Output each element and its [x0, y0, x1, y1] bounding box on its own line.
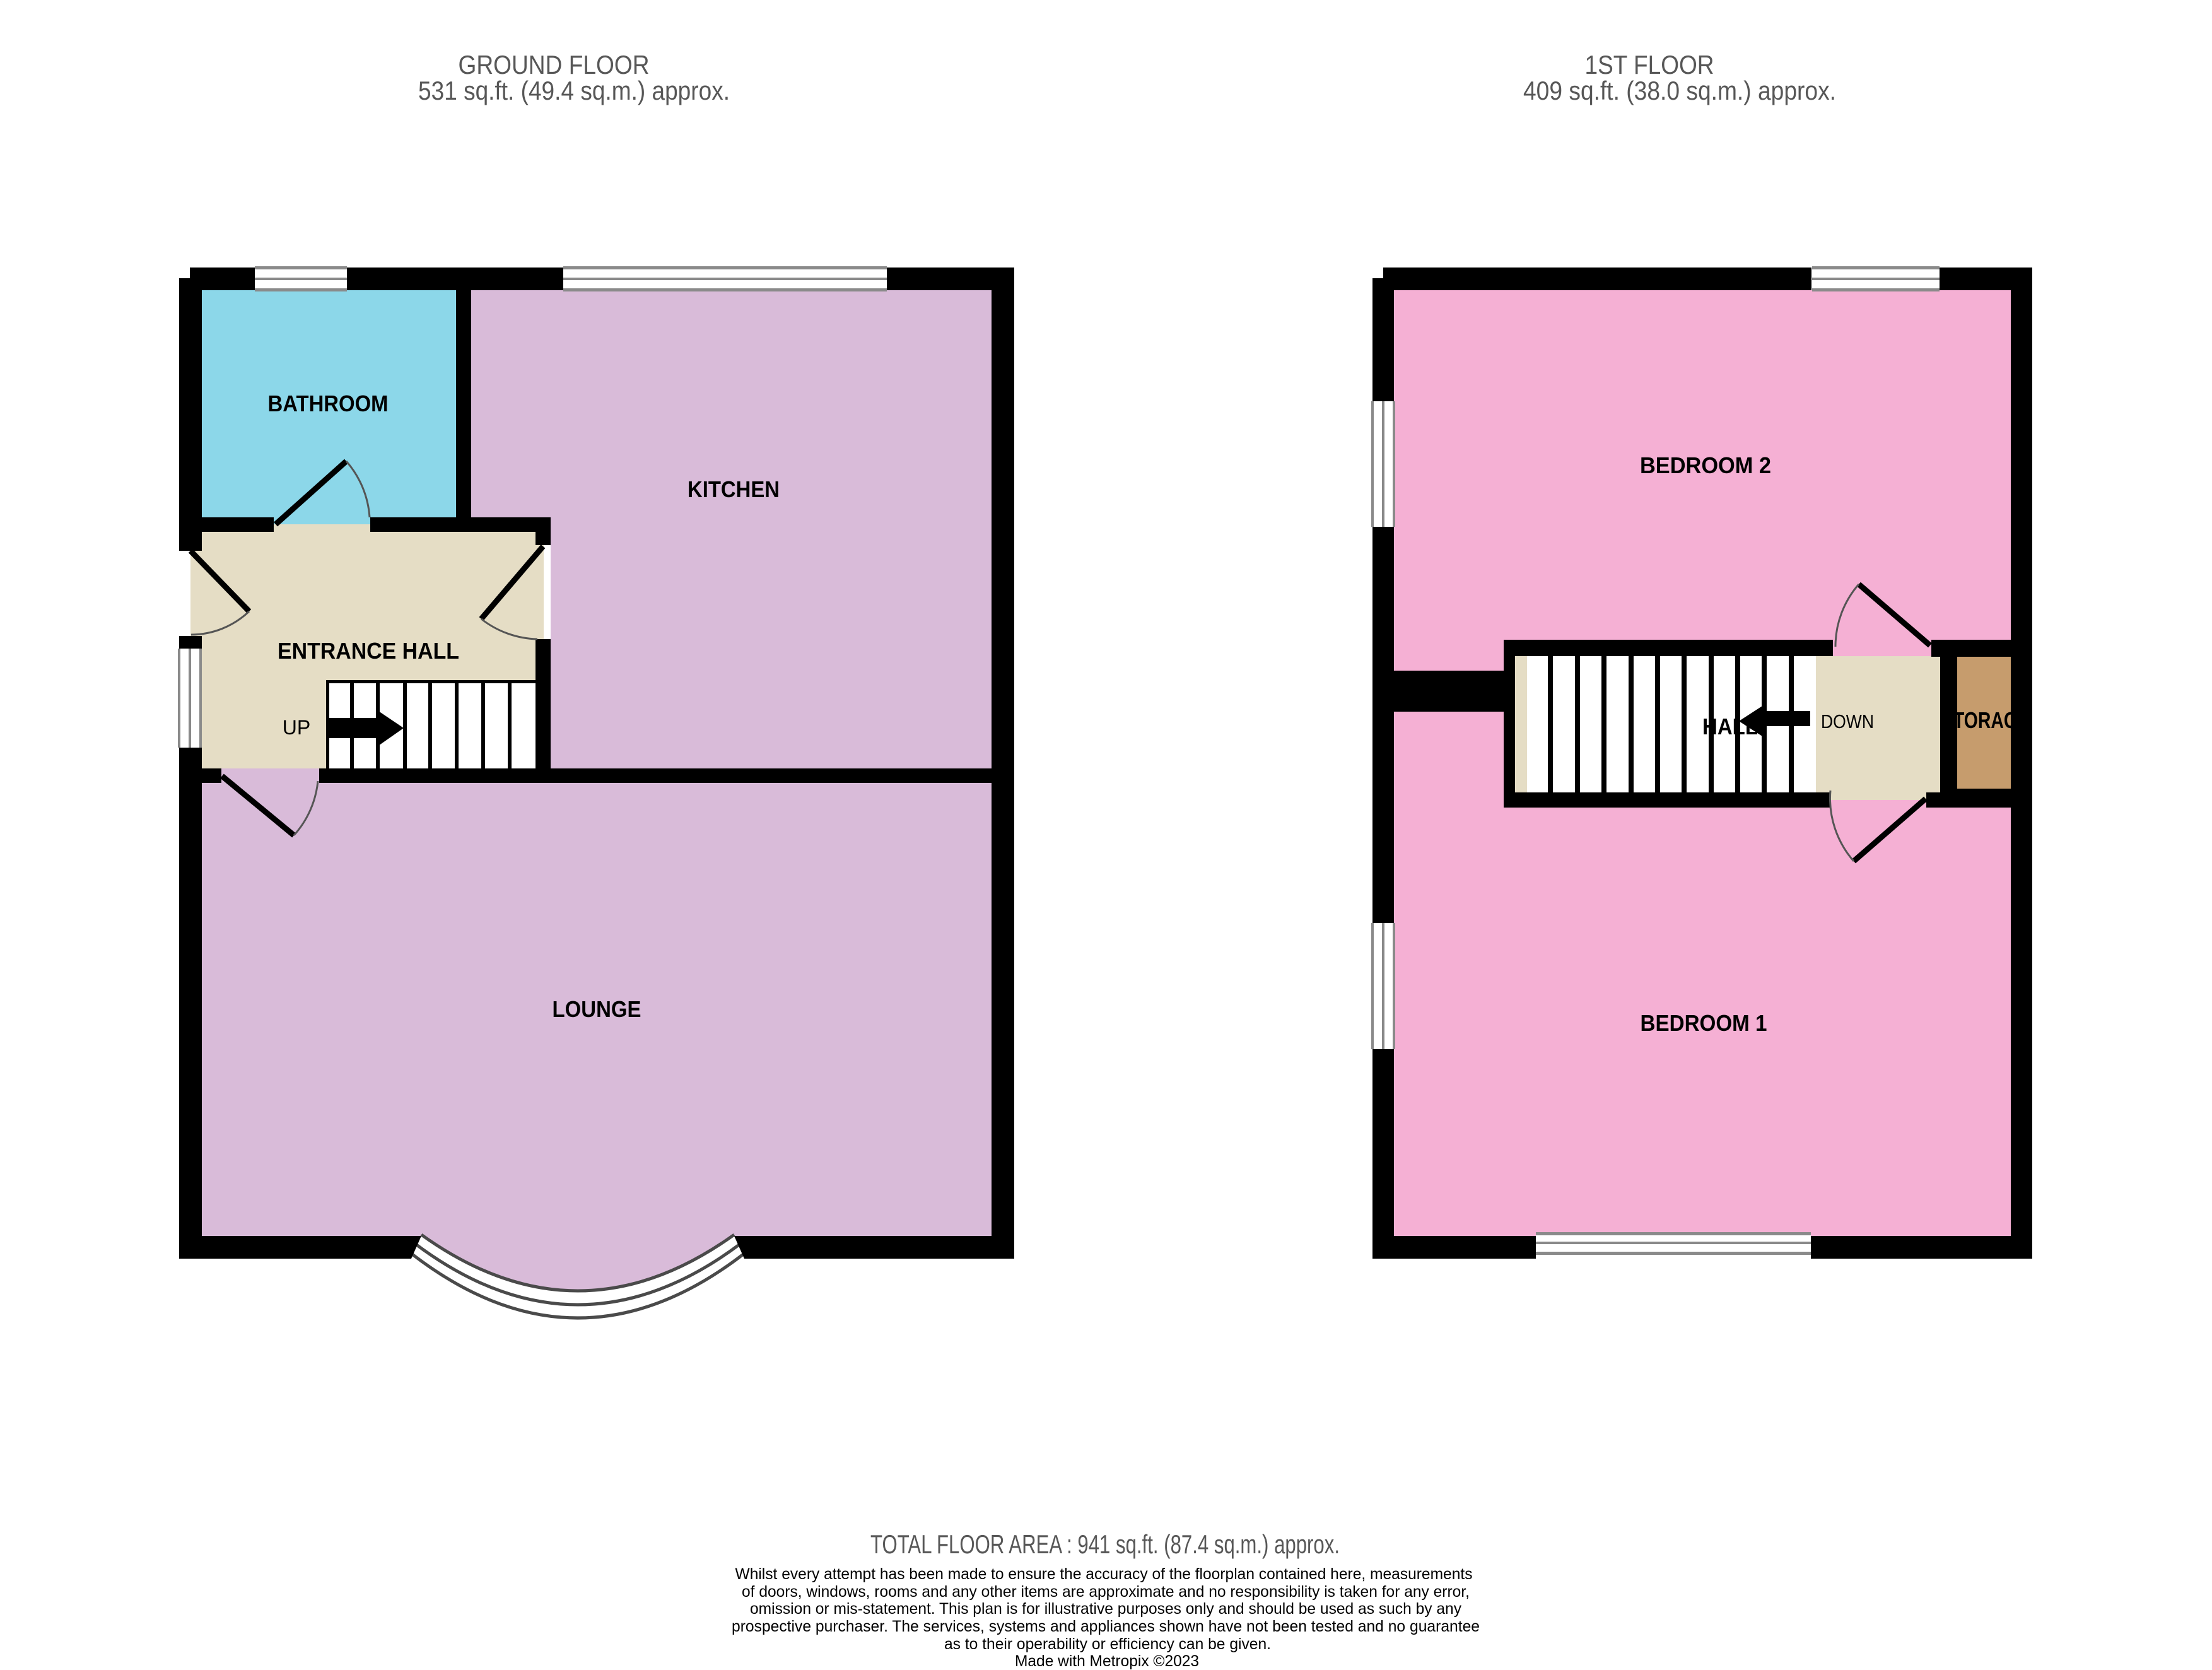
svg-text:BEDROOM 1: BEDROOM 1: [1641, 1010, 1767, 1036]
svg-text:BATHROOM: BATHROOM: [268, 391, 389, 416]
svg-text:531 sq.ft. (49.4 sq.m.) approx: 531 sq.ft. (49.4 sq.m.) approx.: [418, 76, 730, 105]
svg-text:omission or mis-statement. Thi: omission or mis-statement. This plan is …: [750, 1600, 1461, 1618]
svg-text:ENTRANCE HALL: ENTRANCE HALL: [278, 638, 459, 664]
svg-text:of doors, windows, rooms and a: of doors, windows, rooms and any other i…: [742, 1583, 1470, 1601]
svg-text:LOUNGE: LOUNGE: [553, 996, 641, 1022]
svg-text:TOTAL FLOOR AREA : 941 sq.ft.: TOTAL FLOOR AREA : 941 sq.ft. (87.4 sq.m…: [870, 1529, 1340, 1559]
svg-text:UP: UP: [283, 716, 310, 739]
svg-text:Made with Metropix ©2023: Made with Metropix ©2023: [1015, 1652, 1199, 1670]
svg-text:DOWN: DOWN: [1821, 710, 1874, 732]
svg-text:prospective purchaser. The ser: prospective purchaser. The services, sys…: [732, 1618, 1480, 1635]
svg-text:Whilst every attempt has been: Whilst every attempt has been made to en…: [735, 1565, 1473, 1583]
svg-text:BEDROOM 2: BEDROOM 2: [1640, 452, 1771, 478]
svg-text:KITCHEN: KITCHEN: [688, 476, 780, 502]
svg-text:409 sq.ft. (38.0 sq.m.) approx: 409 sq.ft. (38.0 sq.m.) approx.: [1523, 76, 1836, 105]
svg-text:as to their operability or eff: as to their operability or efficiency ca…: [944, 1635, 1271, 1653]
svg-text:1ST FLOOR: 1ST FLOOR: [1585, 50, 1714, 79]
svg-text:GROUND FLOOR: GROUND FLOOR: [459, 50, 650, 79]
